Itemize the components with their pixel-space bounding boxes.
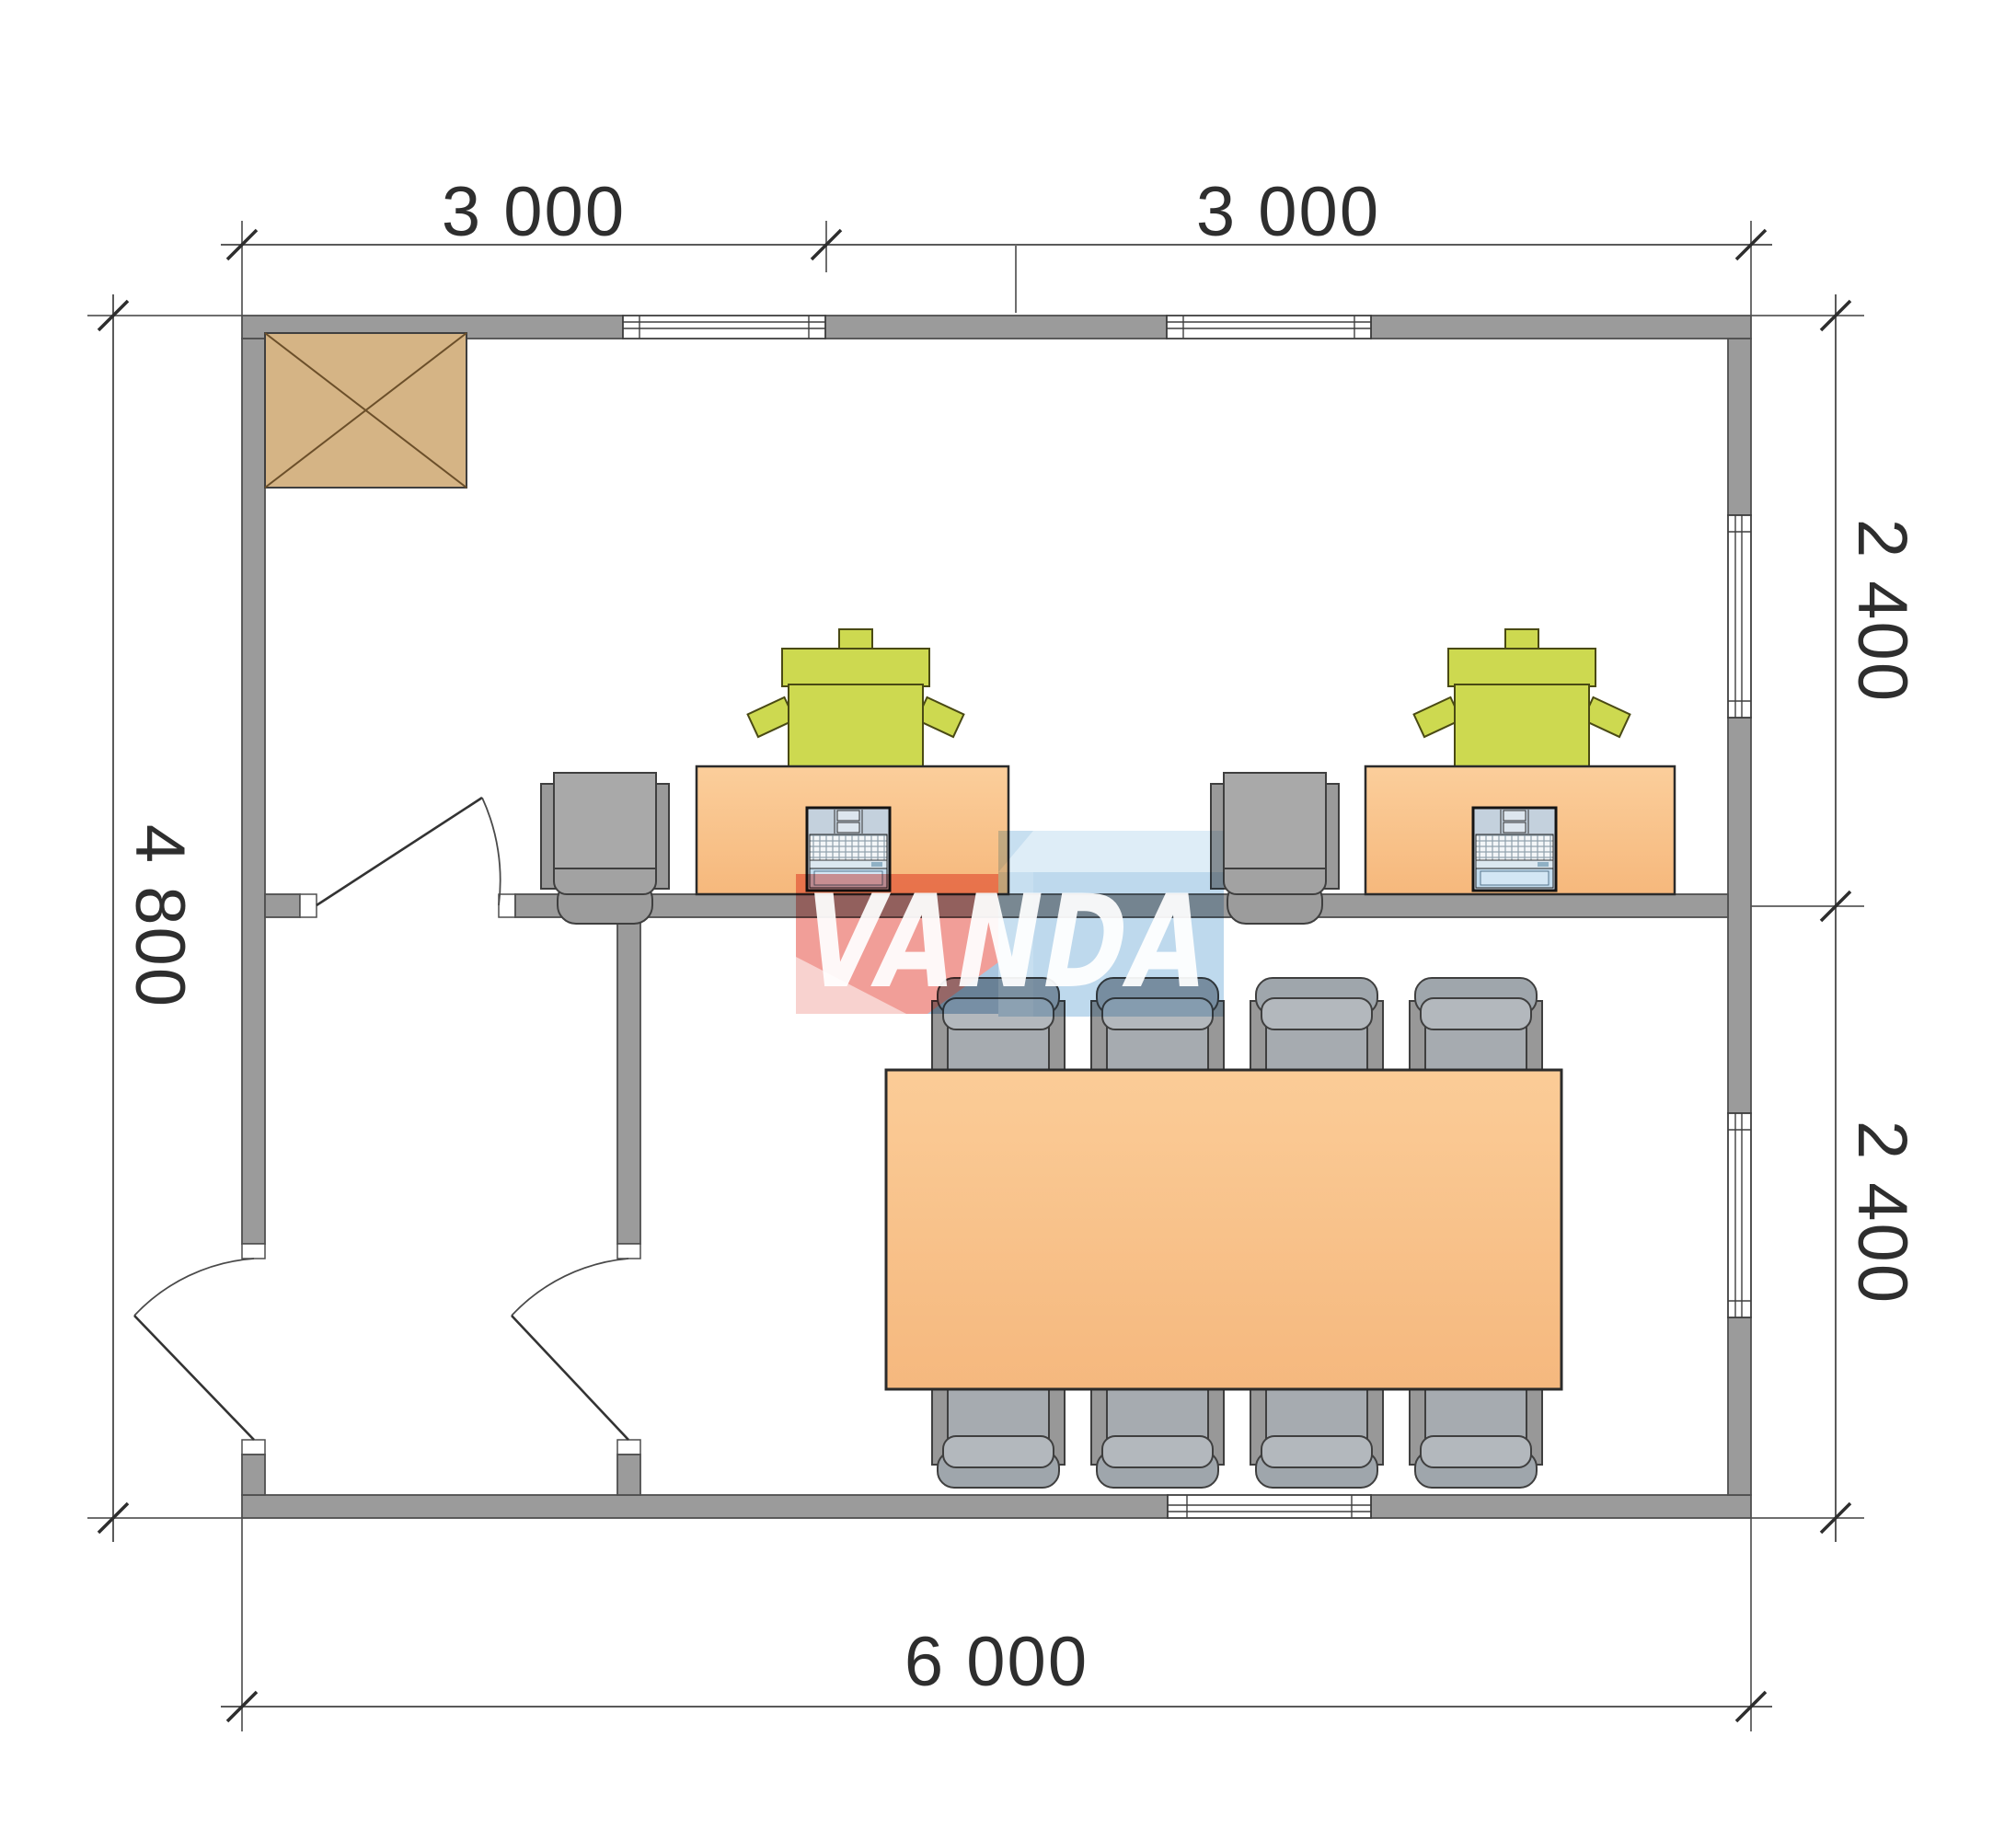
watermark-text: VANDA: [791, 868, 1223, 1017]
door-leaf: [512, 1316, 628, 1440]
dimension-bottom: 6 000: [221, 1518, 1772, 1731]
keyboard: [810, 834, 887, 860]
door-office: [317, 798, 501, 905]
wall-top-3: [1371, 316, 1751, 339]
dimension-left: 4 800: [87, 294, 242, 1542]
window-bottom: [1168, 1495, 1371, 1518]
seat: [1455, 684, 1589, 772]
wall-cap: [242, 1244, 265, 1259]
dim-label-left: 4 800: [121, 824, 199, 1008]
window-top-left: [623, 316, 825, 339]
door-leaf: [134, 1316, 254, 1440]
desk-chair-green: [748, 629, 964, 772]
dimension-top: 3 000 3 000: [221, 173, 1772, 316]
wall-left-upper: [242, 339, 265, 1244]
wall-top-2: [825, 316, 1167, 339]
wall-cap: [499, 894, 515, 917]
wardrobe: [265, 333, 467, 488]
window-right-upper: [1728, 515, 1751, 718]
guest-chair: [541, 773, 669, 924]
dim-label-bottom: 6 000: [904, 1623, 1089, 1701]
wall-interior-stub: [617, 1455, 640, 1495]
wall-right-2: [1728, 718, 1751, 1113]
dim-label-right-lower: 2 400: [1843, 1121, 1921, 1305]
door-swing-arc: [512, 1259, 628, 1316]
seat: [789, 684, 923, 772]
wall-bottom-1: [242, 1495, 1168, 1518]
guest-chair: [1211, 773, 1339, 924]
backrest: [782, 649, 929, 686]
wall-bottom-2: [1371, 1495, 1751, 1518]
wall-interior-vertical: [617, 917, 640, 1244]
window-right-lower: [1728, 1113, 1751, 1317]
dim-label-right-upper: 2 400: [1843, 519, 1921, 703]
meeting-table: [886, 1070, 1561, 1389]
backrest: [1448, 649, 1596, 686]
desk-chair-green: [1414, 629, 1630, 772]
wall-left-stub: [242, 1455, 265, 1495]
floor-plan: 3 000 3 000 2 400 2 400 4 800: [0, 0, 2016, 1840]
wall-cap: [617, 1440, 640, 1455]
wall-cap: [300, 894, 317, 917]
dim-label-top-left: 3 000: [442, 173, 626, 251]
dim-label-top-right: 3 000: [1196, 173, 1380, 251]
door-swing-arc: [134, 1259, 254, 1316]
seat: [1224, 773, 1326, 868]
wall-right-3: [1728, 1317, 1751, 1495]
door-leaf: [317, 798, 482, 905]
laptop: [1473, 808, 1556, 891]
workstation-2: [1211, 629, 1675, 924]
door-swing-arc: [482, 798, 501, 905]
keyboard: [1476, 834, 1553, 860]
dimension-right: 2 400 2 400: [1751, 294, 1921, 1542]
trackpad: [1480, 871, 1549, 885]
wall-cap: [242, 1440, 265, 1455]
watermark-blue-top-face: [998, 831, 1224, 872]
window-top-right: [1167, 316, 1371, 339]
wall-cap: [617, 1244, 640, 1259]
seat: [554, 773, 656, 868]
door-entry-exterior: [134, 1259, 254, 1440]
wall-interior-stub: [265, 894, 300, 917]
door-hall: [512, 1259, 628, 1440]
wall-right-1: [1728, 339, 1751, 515]
